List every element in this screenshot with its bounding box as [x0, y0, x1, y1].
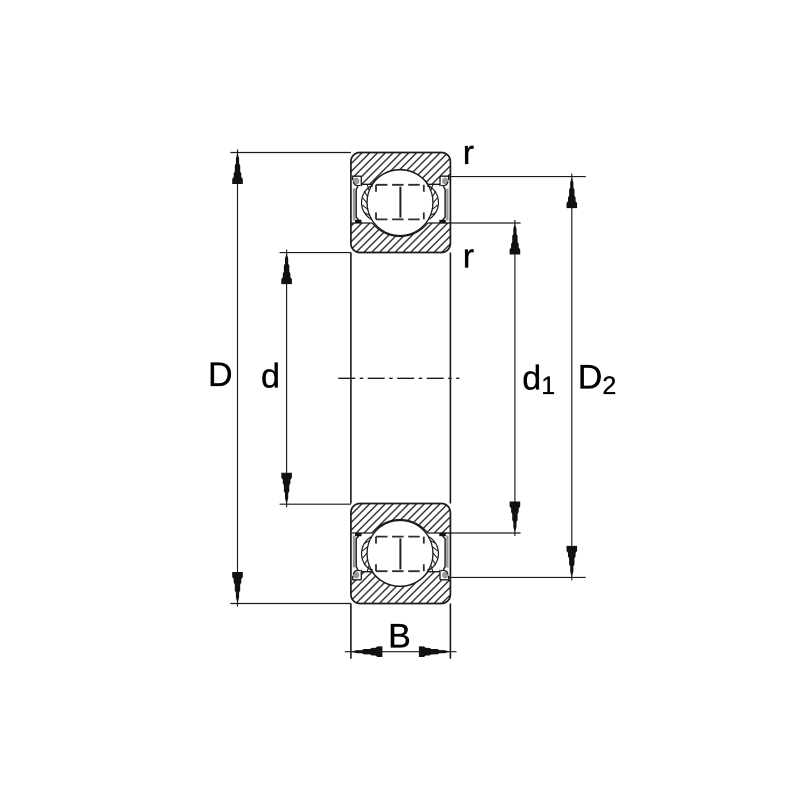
svg-text:D: D	[208, 356, 233, 394]
svg-text:B: B	[388, 617, 411, 655]
svg-text:r: r	[463, 134, 474, 172]
svg-text:d: d	[261, 358, 280, 396]
svg-text:r: r	[463, 238, 474, 276]
